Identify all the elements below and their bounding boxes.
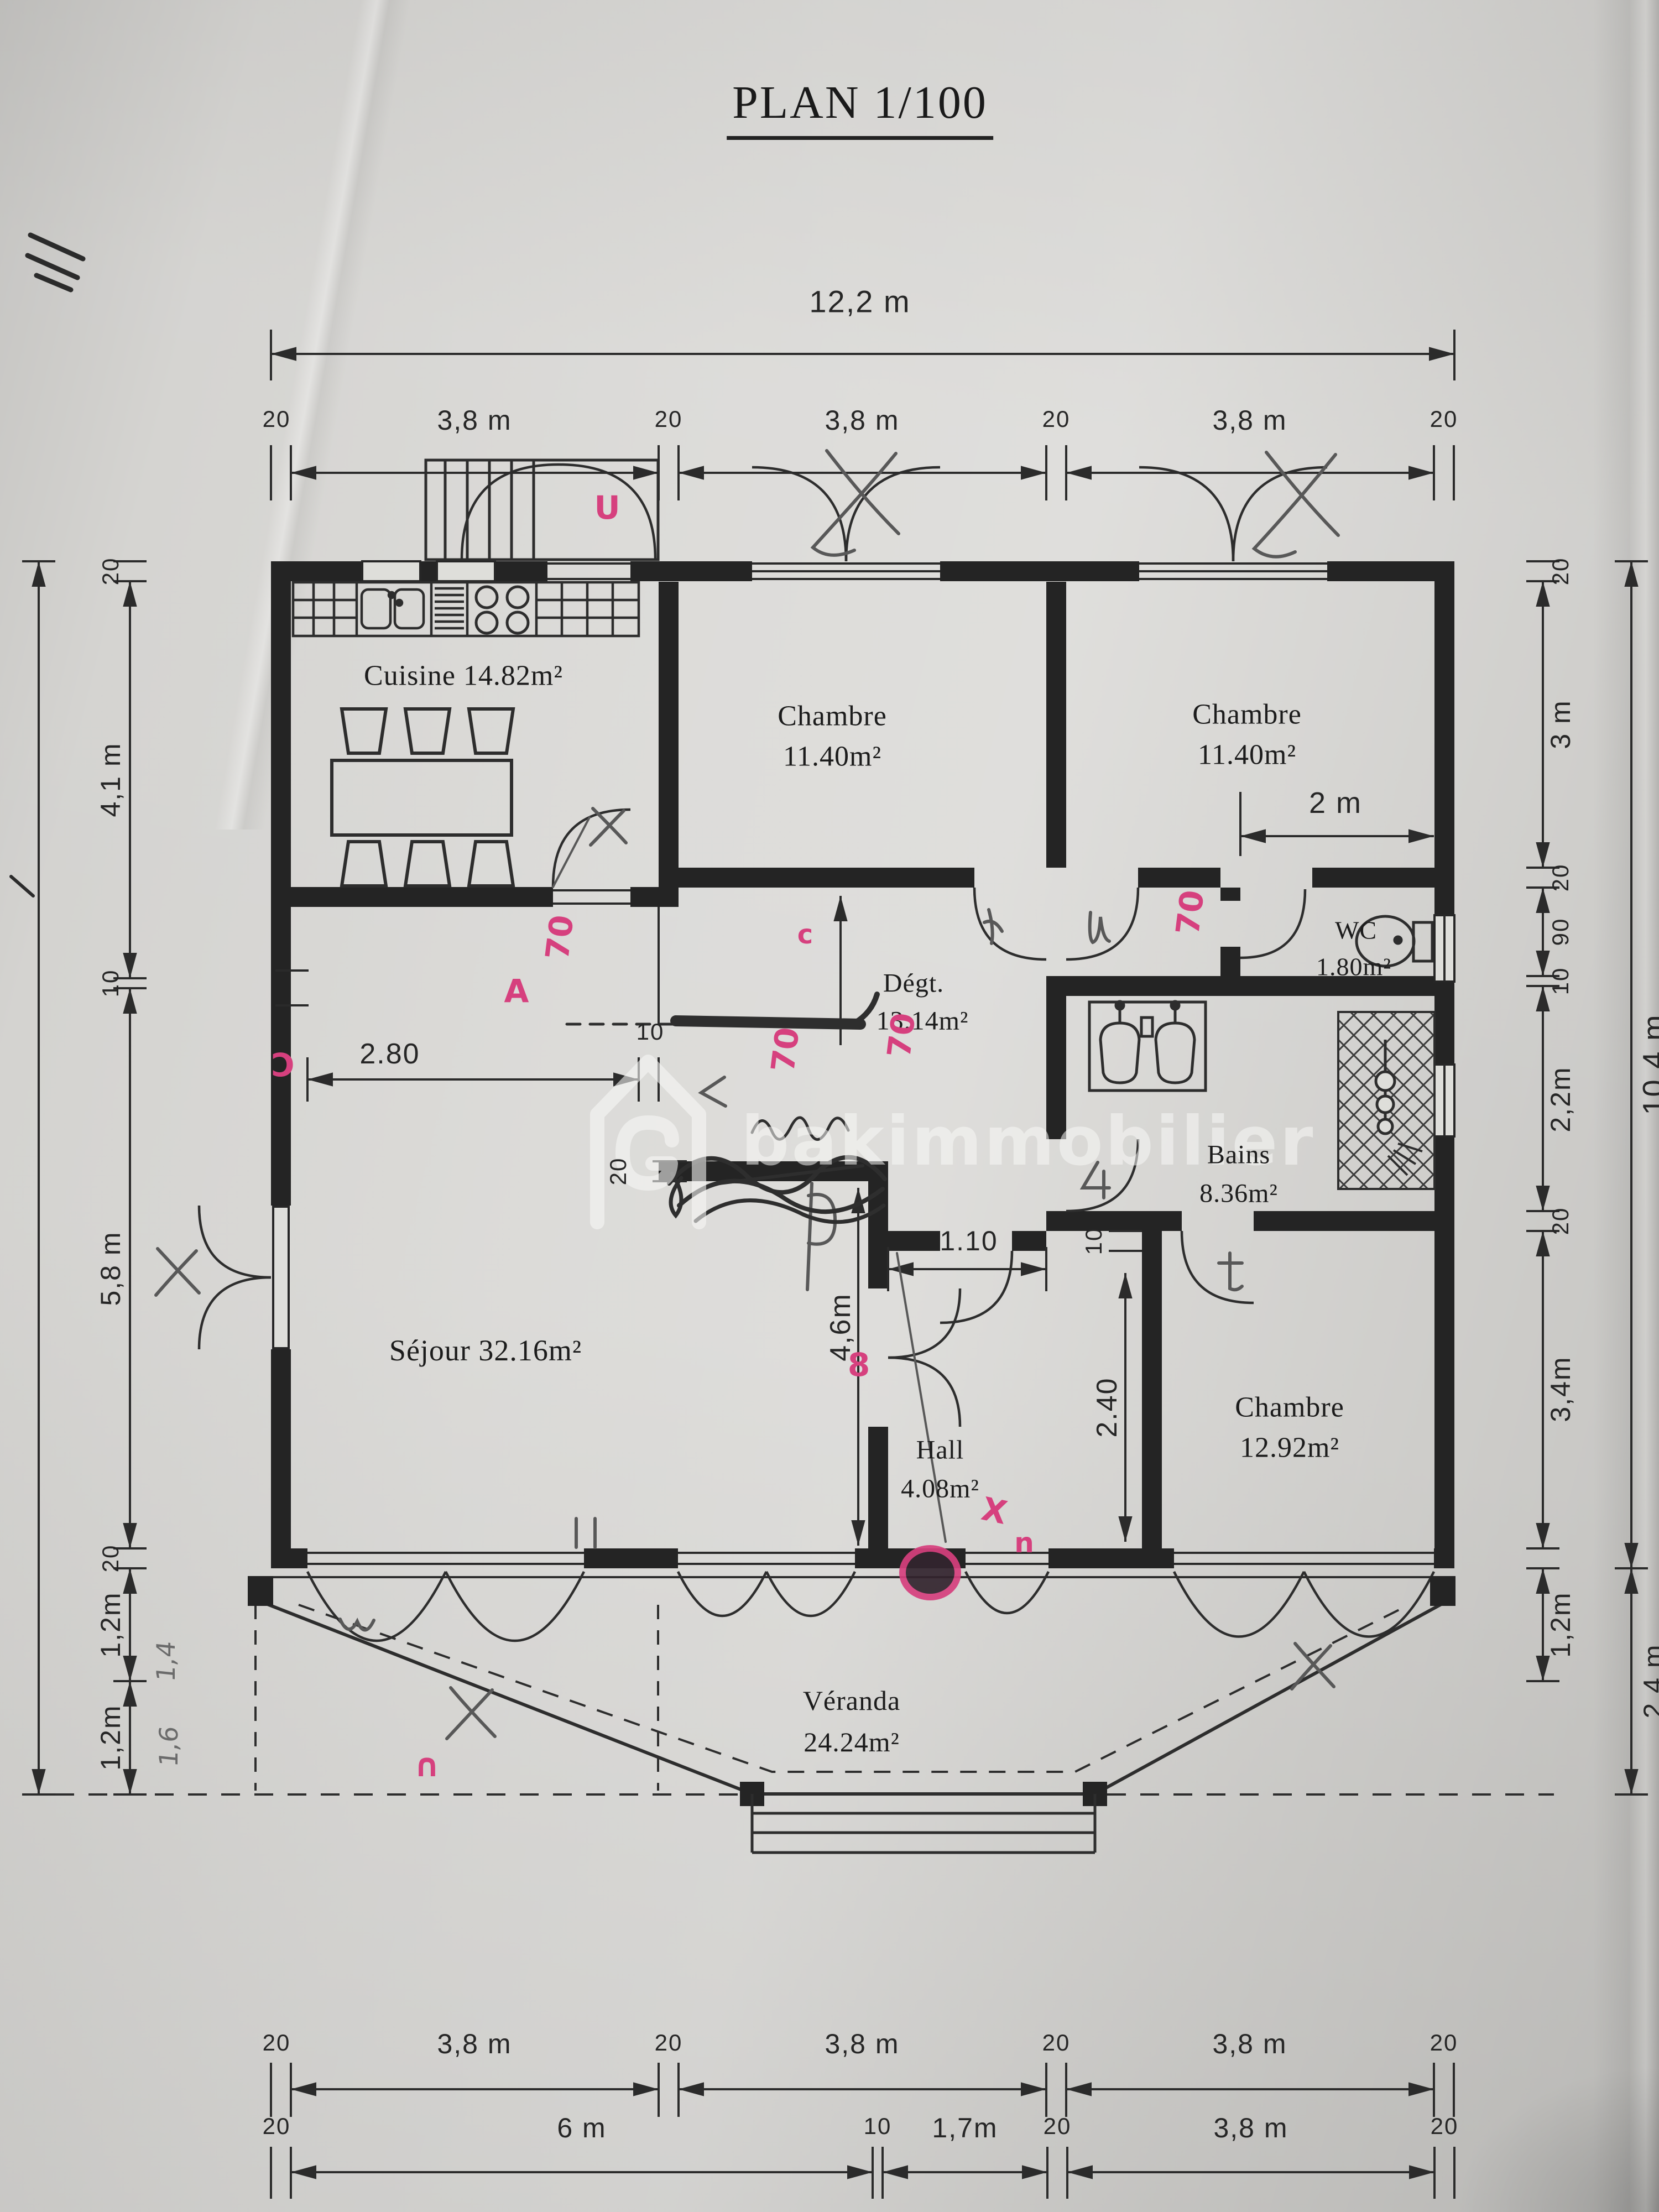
pink-door-width-70: 70 [538, 913, 581, 962]
dim-b2-6m: 6 m [557, 2112, 606, 2144]
dim-wall-20: 20 [605, 1157, 632, 1186]
pink-door-width-70: 70 [764, 1025, 806, 1074]
dim-right-34m: 3,4m [1545, 1356, 1577, 1422]
scanned-floor-plan-page: { "title": "PLAN 1/100", "dims": { "top_… [0, 0, 1659, 2212]
dim-b1-38: 3,8 m [1212, 2028, 1287, 2060]
room-label-sejour: Séjour 32.16m² [389, 1333, 582, 1368]
room-area-chambre2: 11.40m² [1198, 739, 1296, 771]
pink-mark-paren: Ɔ [272, 1046, 295, 1084]
pink-mark-n: n [1014, 1527, 1034, 1559]
dim-right-22m: 2,2m [1545, 1066, 1577, 1132]
dim-top-20: 20 [263, 406, 291, 432]
dim-right-90: 90 [1547, 918, 1574, 946]
dim-top-38: 3,8 m [825, 404, 899, 436]
dim-b1-20: 20 [655, 2030, 683, 2056]
dim-offset-wall-10: 10 [637, 1019, 665, 1045]
dim-left-20: 20 [97, 557, 124, 586]
dim-b1-38: 3,8 m [825, 2028, 899, 2060]
pink-mark-a: A [504, 972, 529, 1010]
dim-b2-20: 20 [263, 2113, 291, 2140]
dim-right-outer-104m: 10,4 m [1636, 1014, 1659, 1115]
room-label-wc: WC [1335, 916, 1377, 945]
dim-top-total: 12,2 m [809, 284, 910, 320]
pink-door-width-70: 70 [1168, 888, 1211, 937]
dim-right-20: 20 [1547, 557, 1574, 586]
dim-top-20: 20 [1430, 406, 1458, 432]
room-area-veranda: 24.24m² [804, 1726, 899, 1758]
room-area-chambre1: 11.40m² [783, 740, 881, 773]
pencil-note-16: 1,6 [154, 1725, 184, 1768]
dim-b2-17m: 1,7m [932, 2112, 998, 2144]
dim-b2-38: 3,8 m [1213, 2112, 1288, 2144]
pink-mark-arch: ∩ [414, 1746, 440, 1784]
dim-left-20b: 20 [97, 1545, 124, 1573]
dim-b2-20: 20 [1044, 2113, 1072, 2140]
dim-top-38: 3,8 m [437, 404, 512, 436]
dim-chambre3-recess: 2.40 [1091, 1377, 1124, 1437]
room-area-hall: 4.08m² [901, 1474, 979, 1504]
dim-left-12b: 1,2m [95, 1704, 127, 1770]
dim-b2-10: 10 [864, 2113, 892, 2140]
room-label-chambre3: Chambre [1235, 1391, 1344, 1424]
room-label-chambre1: Chambre [778, 700, 887, 733]
room-area-chambre3: 12.92m² [1240, 1432, 1339, 1464]
pencil-note-14: 1,4 [151, 1640, 181, 1683]
dim-b1-20: 20 [1042, 2030, 1071, 2056]
dim-b1-38: 3,8 m [437, 2028, 512, 2060]
dim-top-38: 3,8 m [1212, 404, 1287, 436]
room-label-hall: Hall [916, 1435, 964, 1465]
dim-b2-20: 20 [1431, 2113, 1459, 2140]
dim-left-12a: 1,2m [95, 1592, 127, 1657]
dim-right-20b: 20 [1547, 864, 1574, 892]
plan-title: PLAN 1/100 [727, 76, 993, 140]
dim-right-20c: 20 [1547, 1207, 1574, 1235]
dim-hall-wall-10: 10 [1081, 1227, 1107, 1255]
dim-right-outer-24m: 2,4 m [1637, 1644, 1659, 1718]
pink-mark-c: c [797, 919, 813, 950]
dim-sejour-offset: 2.80 [359, 1037, 420, 1071]
dim-top-20: 20 [655, 406, 683, 432]
dim-b1-20: 20 [1430, 2030, 1458, 2056]
dim-right-3m: 3 m [1545, 700, 1577, 749]
dim-left-58m: 5,8 m [95, 1231, 127, 1306]
room-label-degagement: Dégt. [883, 968, 944, 999]
dim-left-10: 10 [97, 969, 124, 998]
dim-corridor-110: 1.10 [940, 1225, 998, 1257]
room-label-bains: Bains [1207, 1140, 1270, 1170]
pink-mark-eight: 8 [848, 1346, 870, 1384]
dim-right-10: 10 [1547, 967, 1574, 995]
room-area-bains: 8.36m² [1199, 1178, 1278, 1209]
pink-door-width-70: 70 [880, 1011, 922, 1060]
room-label-chambre2: Chambre [1192, 698, 1302, 731]
dim-b1-20: 20 [263, 2030, 291, 2056]
room-area-wc: 1.80m² [1316, 952, 1391, 982]
room-label-cuisine: Cuisine 14.82m² [364, 660, 563, 692]
dim-left-41m: 4,1 m [95, 742, 127, 817]
dim-right-12m: 1,2m [1545, 1592, 1577, 1657]
room-label-veranda: Véranda [803, 1684, 900, 1717]
dim-chambre2-width: 2 m [1309, 786, 1362, 820]
dim-top-20: 20 [1042, 406, 1071, 432]
pink-mark-porch: U [594, 489, 620, 526]
